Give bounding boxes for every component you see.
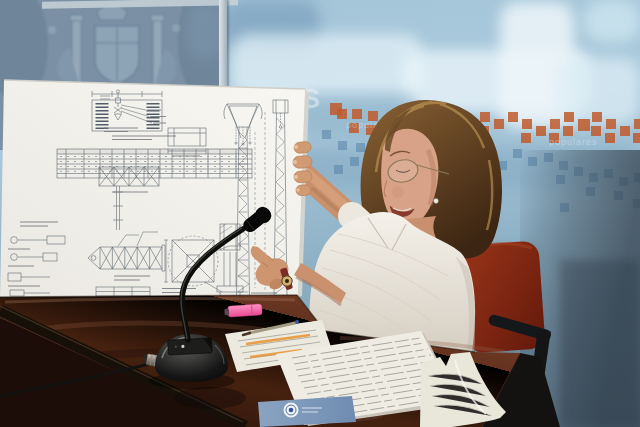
card-logo-center — [289, 408, 294, 413]
scene-figures — [0, 0, 640, 427]
watch-dial — [285, 279, 289, 283]
pen-cap-end — [295, 320, 299, 324]
cheek — [392, 186, 404, 198]
pink-highlighter — [224, 304, 263, 321]
presenter — [304, 100, 502, 360]
mic-reflection — [174, 387, 246, 409]
earring — [434, 199, 439, 204]
photo-scene: S populares populares — [0, 0, 640, 427]
highlighter-nub — [224, 309, 229, 316]
highlighter-body — [228, 304, 263, 317]
